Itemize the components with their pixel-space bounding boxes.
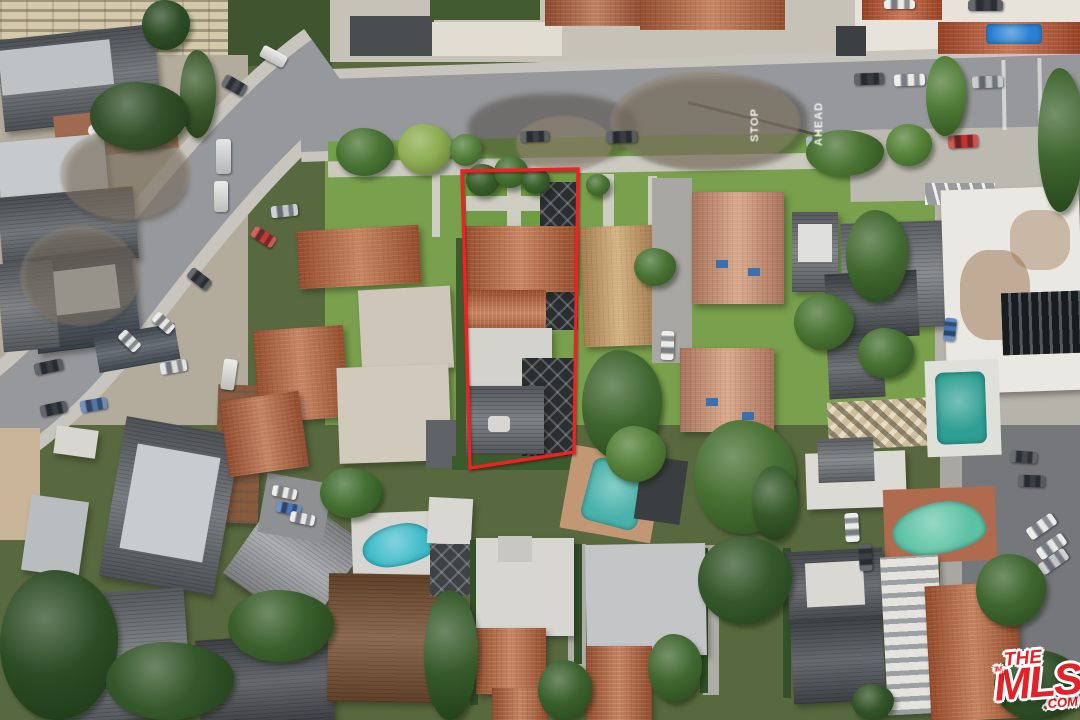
mls-watermark: THE MLSTM .COM [991,644,1080,719]
mls-mls-text: MLSTM [992,657,1080,708]
mls-trademark: TM [994,666,1001,674]
aerial-photo: STOP AHEAD THE MLSTM .COM [0,0,1080,720]
property-outline-layer [0,0,1080,720]
property-boundary [462,169,578,468]
